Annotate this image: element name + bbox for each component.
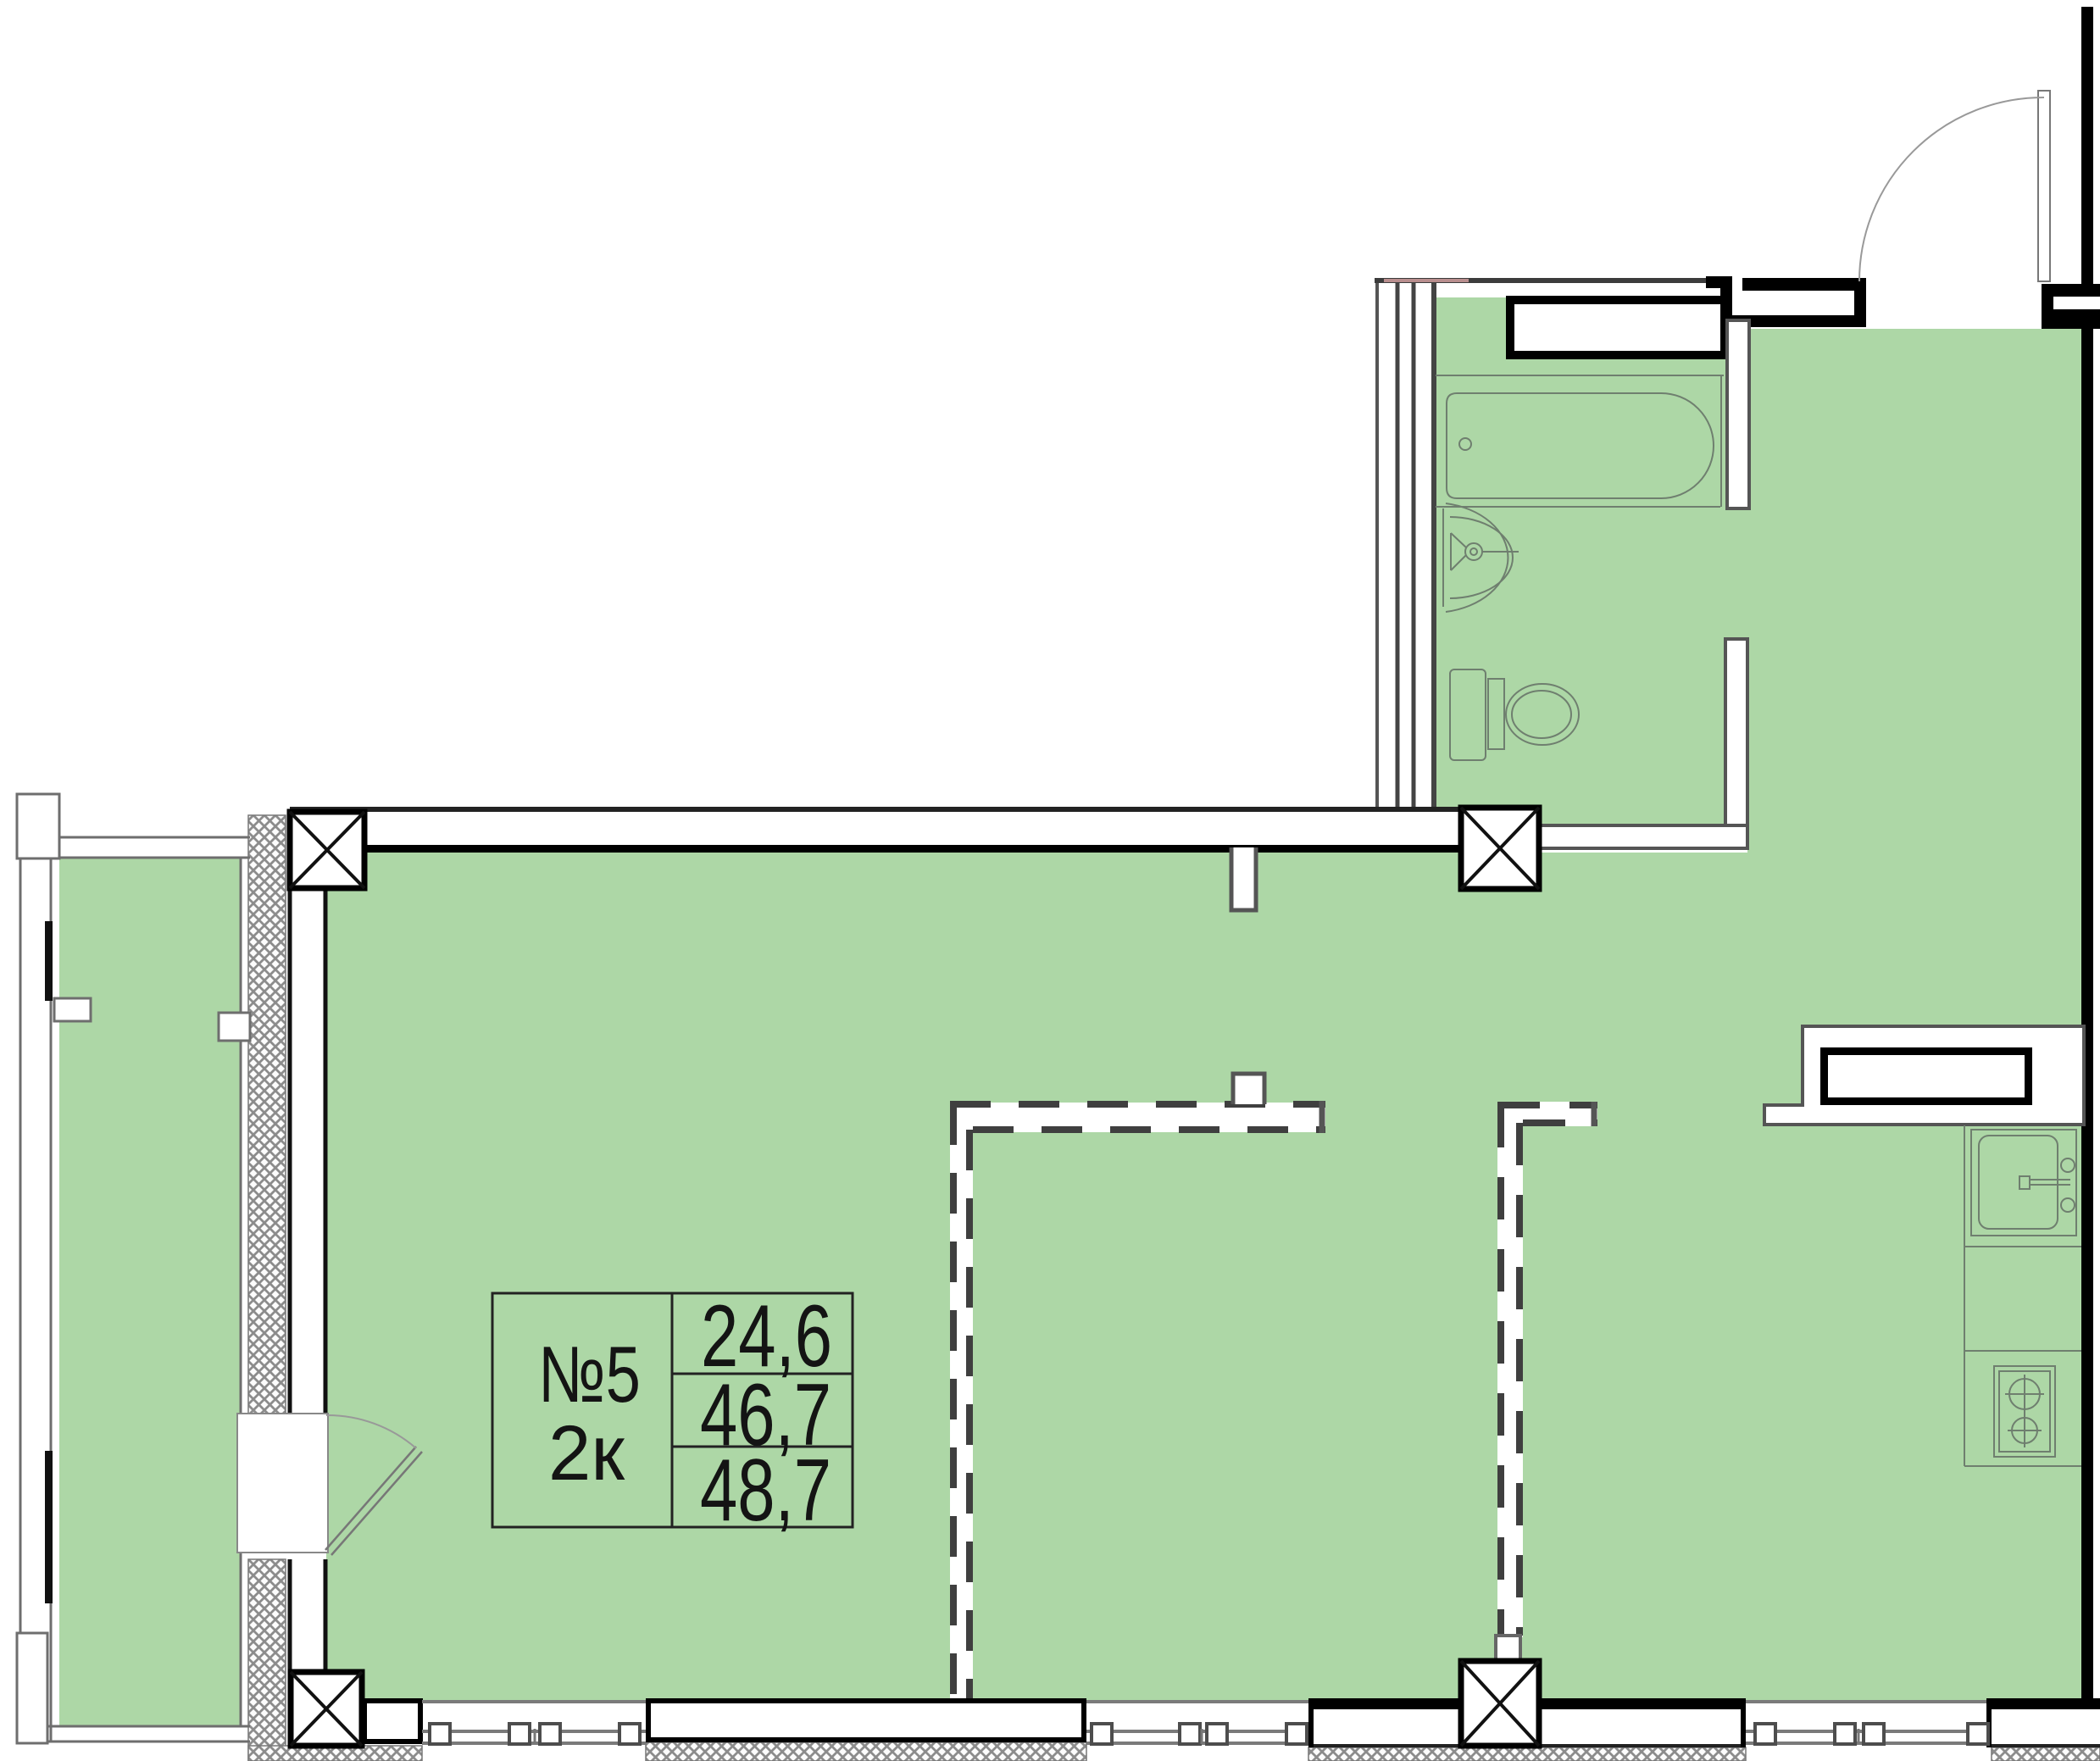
svg-text:№5: №5 — [538, 1330, 641, 1419]
svg-text:48,7: 48,7 — [700, 1442, 831, 1540]
svg-text:2к: 2к — [548, 1410, 625, 1497]
